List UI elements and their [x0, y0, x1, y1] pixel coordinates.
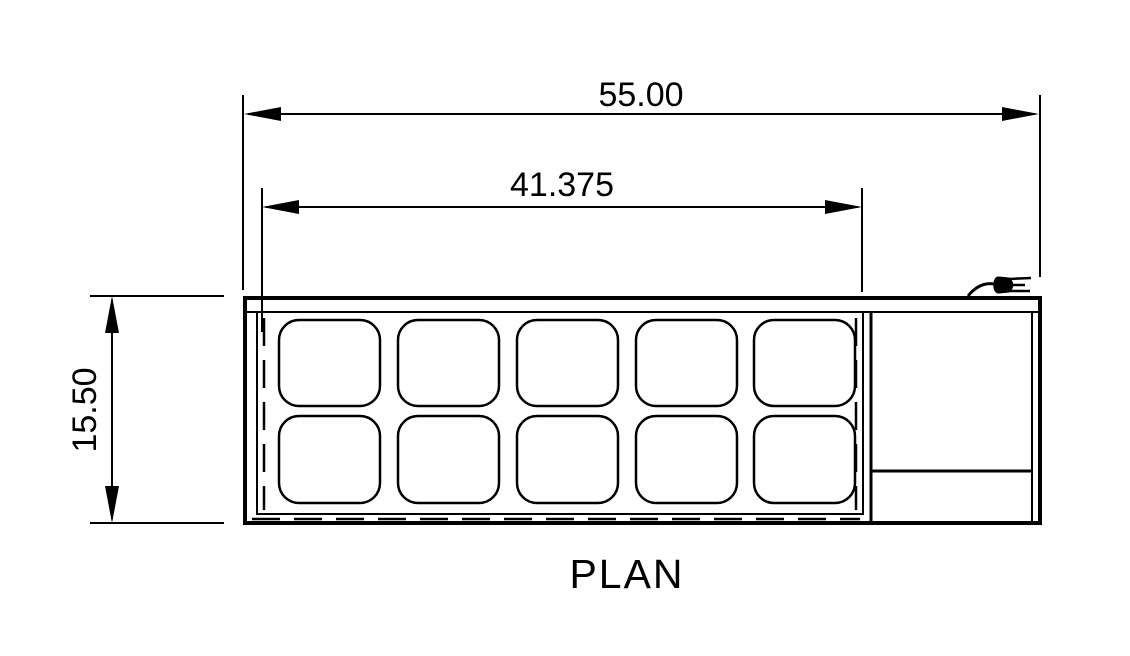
pan	[754, 320, 855, 406]
dimension-overall-width-value: 55.00	[598, 76, 683, 114]
cabinet-body	[245, 298, 1040, 523]
arrowhead-right-icon	[825, 200, 862, 214]
arrowhead-left-icon	[262, 200, 299, 214]
arrowhead-up-icon	[105, 296, 119, 333]
pan	[754, 416, 855, 503]
plan-drawing: 55.00 41.375 15.50	[0, 0, 1130, 656]
plug-prongs	[1009, 278, 1031, 291]
cabinet-outline	[245, 298, 1040, 523]
dimension-overall-width: 55.00	[243, 76, 1040, 290]
plan-drawing-canvas: 55.00 41.375 15.50	[0, 0, 1130, 656]
hidden-interior-lines	[252, 318, 860, 519]
dimension-interior-width: 41.375	[262, 166, 862, 332]
dimension-depth: 15.50	[66, 296, 224, 523]
arrowhead-down-icon	[105, 486, 119, 523]
dimension-interior-width-value: 41.375	[510, 166, 614, 204]
pan	[398, 320, 499, 406]
arrowhead-right-icon	[1002, 107, 1039, 121]
arrowhead-left-icon	[244, 107, 281, 121]
pan-grid	[279, 320, 855, 503]
pan	[279, 416, 380, 503]
pan	[636, 416, 737, 503]
view-label: PLAN	[569, 551, 684, 597]
pan	[636, 320, 737, 406]
pan-well-area	[257, 312, 863, 514]
compressor-section	[871, 312, 1032, 521]
power-plug-icon	[968, 277, 1031, 296]
pan	[517, 320, 618, 406]
pan	[517, 416, 618, 503]
pan	[398, 416, 499, 503]
pan	[279, 320, 380, 406]
dimension-depth-value: 15.50	[66, 367, 104, 452]
